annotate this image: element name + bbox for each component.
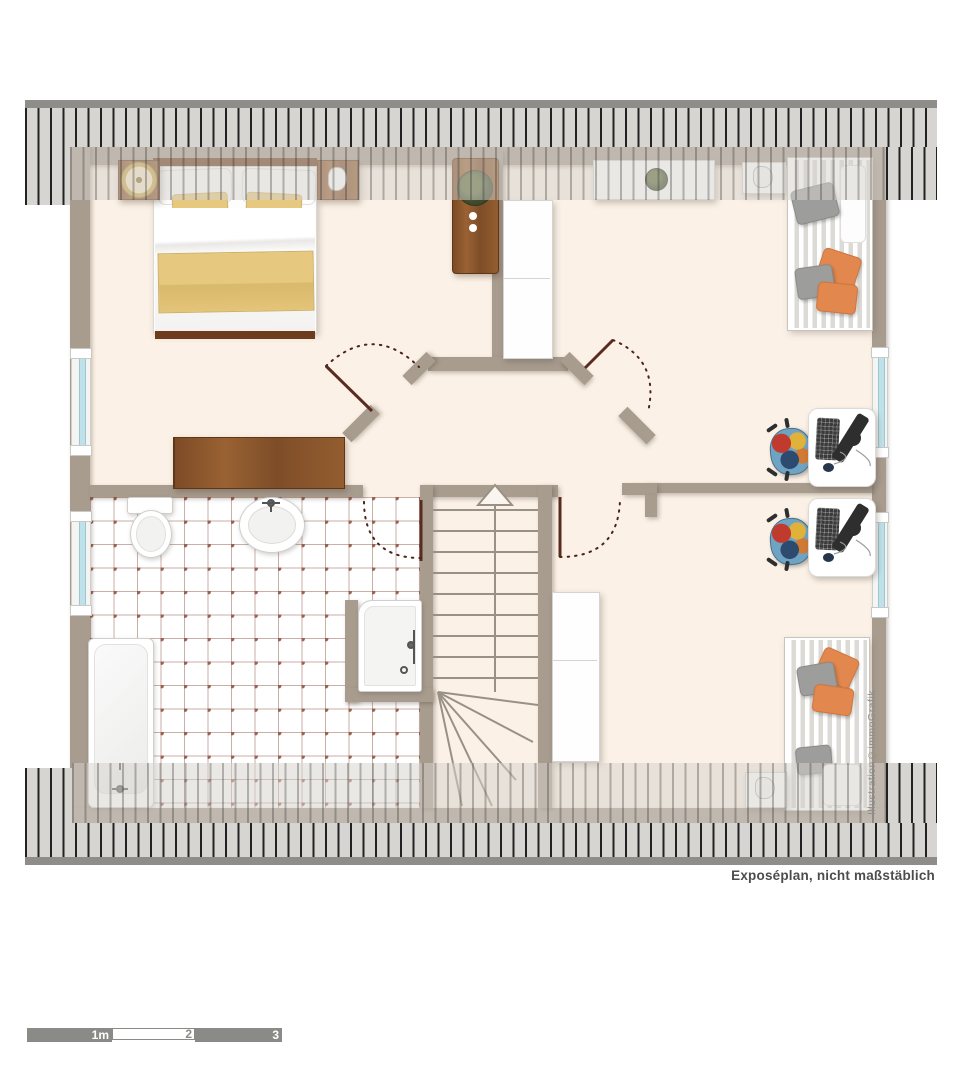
scale-segment-1: 1m xyxy=(27,1028,112,1042)
bed-blanket xyxy=(157,251,314,314)
window-frame xyxy=(70,348,92,359)
roof-band-se-ext xyxy=(886,763,937,823)
roof-band-north xyxy=(25,108,937,147)
plant-cabinet-knob xyxy=(469,224,477,232)
pillow-orange xyxy=(811,683,855,716)
hall-tall-cabinet xyxy=(503,200,553,359)
plan-caption: Exposéplan, nicht maßstäblich xyxy=(535,868,935,883)
mouse xyxy=(823,463,834,472)
roof-ridge-cap-north xyxy=(25,100,937,108)
monitor-base xyxy=(845,520,861,536)
scale-label-1m: 1m xyxy=(92,1028,109,1042)
roof-band-south xyxy=(25,823,937,857)
mouse xyxy=(823,553,834,562)
wall-stairs-east xyxy=(538,485,552,808)
wall-shower-west xyxy=(345,600,358,702)
bedroom-dresser xyxy=(173,437,345,489)
watermark-text: Illustration©immoGrafik xyxy=(866,690,878,815)
scale-bar: 1m 2 3 xyxy=(27,1028,282,1042)
sink-basin xyxy=(248,506,296,544)
roof-slope-overlay-south xyxy=(72,763,886,823)
wall-west xyxy=(70,145,90,823)
roof-ridge-cap-south xyxy=(25,857,937,865)
toilet-bowl-inner xyxy=(136,516,166,552)
scale-segment-3: 3 xyxy=(195,1028,282,1042)
roof-slope-overlay-north xyxy=(70,147,886,200)
roof-band-ne-ext xyxy=(886,147,937,200)
window-frame xyxy=(70,445,92,456)
wall-hall-north xyxy=(428,357,568,371)
roof-band-sw-ext xyxy=(25,768,72,823)
cabinet-divider xyxy=(553,660,597,661)
window-glass xyxy=(878,357,885,448)
floorplan-canvas: Illustration©immoGrafik Exposéplan, nich… xyxy=(0,0,960,1067)
window-frame xyxy=(70,605,92,616)
window-frame xyxy=(871,607,889,618)
window-bathroom-west xyxy=(71,511,91,616)
plant-cabinet-knob xyxy=(469,212,477,220)
roof-band-nw-ext xyxy=(25,147,70,205)
cabinet-divider xyxy=(504,278,550,279)
wall-l-vertical xyxy=(645,495,657,517)
window-glass xyxy=(878,522,885,608)
window-glass xyxy=(79,358,86,446)
wall-l-horizontal xyxy=(622,483,657,495)
window-bedroom-west xyxy=(71,348,91,456)
monitor-base xyxy=(845,430,861,446)
window-frame xyxy=(70,511,92,522)
scale-label-3: 3 xyxy=(272,1028,279,1042)
window-glass xyxy=(79,521,86,606)
scale-segment-2: 2 xyxy=(112,1028,195,1040)
stairs-cabinet xyxy=(552,592,600,762)
pillow-orange xyxy=(816,281,859,315)
window-frame xyxy=(871,347,889,358)
bed-footboard xyxy=(155,331,315,339)
shower-tray-inner xyxy=(364,606,416,686)
scale-label-2: 2 xyxy=(185,1027,192,1041)
